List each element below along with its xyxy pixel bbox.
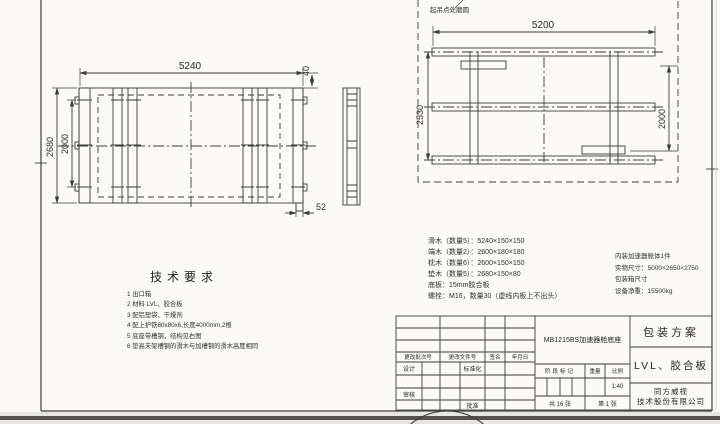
side-view-linework: [343, 88, 360, 205]
package-info-item: 包装箱尺寸: [615, 274, 698, 286]
titleblock-rev-doc-label: 更改文件号: [440, 352, 485, 362]
dim-plan-inner-height: 2000: [60, 129, 70, 159]
dim-plan-top-offset: 40: [301, 56, 311, 86]
dim-lift-width: 5200: [521, 20, 565, 31]
parts-item: 螺栓：M16，数量30（虚线内板上不出头）: [428, 291, 561, 302]
titleblock-sheets-total: 共 16 张: [535, 396, 585, 410]
tech-requirements-list: 1 出口箱 2 材料 LVL、胶合板 3 配铝塑袋、干燥剂 4 配上护铁80x8…: [127, 290, 258, 352]
titleblock-stage-label: 阶段标记: [535, 364, 585, 378]
titleblock-scale-label: 比例: [605, 364, 630, 378]
plan-view-linework: [52, 68, 318, 217]
dim-plan-height: 2680: [45, 132, 55, 162]
tech-requirements-title: 技术要求: [150, 268, 218, 285]
parts-item: 垫木（数量5）：2680×150×80: [428, 269, 561, 280]
company-line-2: 技术股份有限公司: [637, 397, 705, 407]
titleblock-approve-label: 批准: [460, 400, 485, 410]
dim-lift-inner-height: 2000: [657, 104, 667, 134]
parts-item: 端木（数量2）：2600×180×180: [428, 247, 561, 258]
dim-plan-width: 5240: [168, 61, 212, 72]
parts-item: 底板：15mm胶合板: [428, 280, 561, 291]
tech-item: 2 材料 LVL、胶合板: [127, 300, 258, 310]
tech-item: 1 出口箱: [127, 290, 258, 300]
scan-edge-band: [0, 412, 720, 424]
lifting-point-note: 起吊点处磨圆: [430, 4, 469, 14]
tech-item: 5 底座带槽钢，结构见右图: [127, 332, 258, 342]
tech-item: 6 垫高未架槽钢的滑木与加槽钢的滑木高度相同: [127, 342, 258, 352]
titleblock-drawing-title: MB1215BS加速器舱底座: [535, 316, 630, 364]
drawing-sheet: 5240 40 2680 2000 52 起吊点处磨圆 5200 2530 20…: [0, 0, 720, 424]
package-info-item: 实物尺寸：5000×2650×2750: [615, 263, 698, 275]
titleblock-sheet-no: 第 1 张: [585, 396, 630, 410]
titleblock-rev-batch-label: 更改批次号: [396, 352, 440, 362]
company-line-1: 同方威视: [654, 387, 688, 397]
titleblock-scale-value: 1:40: [605, 378, 630, 396]
titleblock-review-label: 审核: [396, 388, 422, 400]
titleblock-company: 同方威视 技术股份有限公司: [630, 383, 712, 410]
dim-skid-width: 52: [311, 202, 331, 212]
parts-list: 滑木（数量5）：5240×150×150 端木（数量2）：2600×180×18…: [428, 236, 561, 302]
titleblock-standardize-label: 标准化: [460, 362, 485, 375]
titleblock-material: LVL、胶合板: [630, 347, 712, 383]
parts-item: 滑木（数量5）：5240×150×150: [428, 236, 561, 247]
titleblock-sign-label: 签名: [485, 352, 505, 362]
dim-lift-height: 2530: [415, 100, 425, 130]
titleblock-design-label: 设计: [396, 362, 422, 375]
package-info-item: 内装加速器舱体1件: [615, 251, 698, 263]
titleblock-scheme-title: 包装方案: [630, 316, 712, 347]
package-info-item: 设备净重：15500kg: [615, 286, 698, 298]
titleblock-weight-label: 重量: [585, 364, 605, 378]
parts-item: 枕木（数量6）：2600×150×150: [428, 258, 561, 269]
tech-item: 4 配上护铁80x80x6,长度4000mm,2根: [127, 321, 258, 331]
package-info: 内装加速器舱体1件 实物尺寸：5000×2650×2750 包装箱尺寸 设备净重…: [615, 251, 698, 297]
titleblock-date-label: 年月日: [505, 352, 535, 362]
tech-item: 3 配铝塑袋、干燥剂: [127, 311, 258, 321]
